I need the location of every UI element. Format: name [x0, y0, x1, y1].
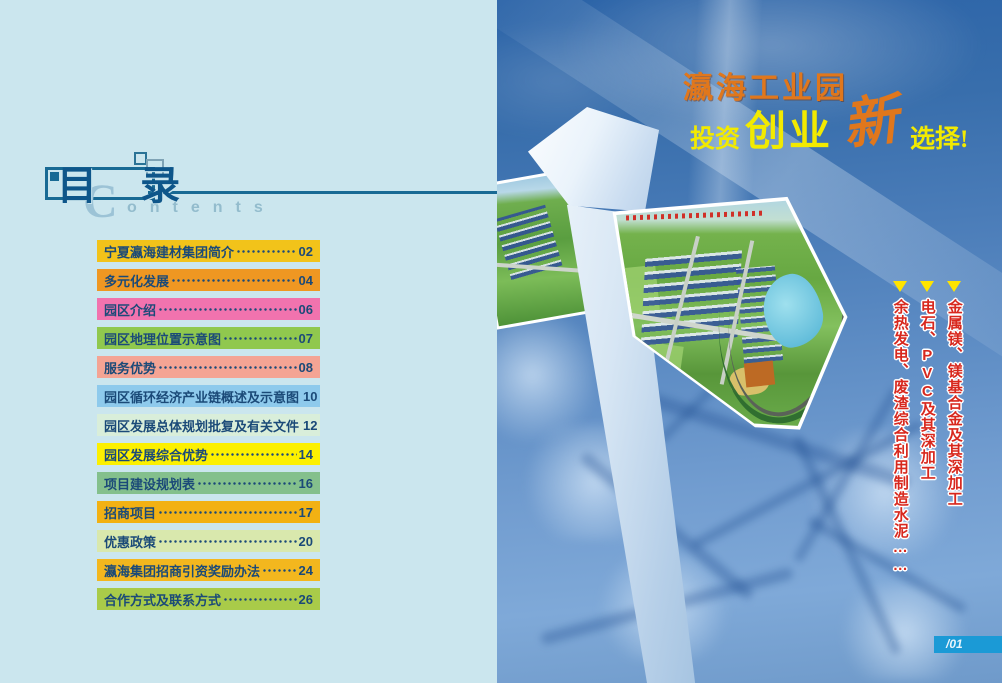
headline-slogan: 投资 创业 新 选择!: [690, 98, 968, 152]
toc-item: 园区地理位置示意图 07: [97, 327, 320, 349]
toc-item-page-number: 20: [299, 534, 313, 549]
toc-leader-dots: [171, 269, 297, 291]
arrow-down-icon: [893, 281, 907, 292]
toc-item: 园区发展总体规划批复及有关文件 12: [97, 414, 320, 436]
toc-leader-dots: [158, 298, 297, 320]
toc-item: 多元化发展 04: [97, 269, 320, 291]
toc-item-label: 多元化发展: [104, 271, 169, 290]
brochure-spread: { "toc": { "title": "目 录", "contents_ini…: [0, 0, 1002, 683]
toc-item: 优惠政策 20: [97, 530, 320, 552]
toc-item-page-number: 17: [299, 505, 313, 520]
header-rule: [148, 191, 497, 194]
toc-item: 招商项目 17: [97, 501, 320, 523]
toc-item-page-number: 08: [299, 360, 313, 375]
toc-item: 宁夏瀛海建材集团简介 02: [97, 240, 320, 262]
slogan-column: 金属镁、镁基合金及其深加工: [943, 281, 965, 507]
headline-word-choice: 选择!: [910, 127, 968, 152]
toc-leader-dots: [223, 327, 297, 349]
toc-leader-dots: [223, 588, 297, 610]
toc-leader-dots: [210, 443, 297, 465]
page-number: /01: [946, 637, 963, 651]
toc-item: 园区发展综合优势 14: [97, 443, 320, 465]
toc-item: 园区介绍 06: [97, 298, 320, 320]
page-title: 目 录: [57, 166, 196, 206]
toc-page: C 目 录 ontents 宁夏瀛海建材集团简介 02 多元化发展 04 园区介…: [0, 0, 497, 683]
toc-item-label: 项目建设规划表: [104, 474, 195, 493]
toc-item: 园区循环经济产业链概述及示意图 10: [97, 385, 320, 407]
toc-item-page-number: 12: [303, 418, 317, 433]
page-number-badge: /01: [934, 636, 1002, 653]
arrow-down-icon: [920, 281, 934, 292]
slogan-column: 电石、PVC及其深加工: [916, 281, 938, 481]
toc-leader-dots: [197, 472, 297, 494]
toc-item-page-number: 24: [299, 563, 313, 578]
toc-list: 宁夏瀛海建材集团简介 02 多元化发展 04 园区介绍 06 园区地理位置示意图…: [97, 240, 320, 617]
slogan-text: 金属镁、镁基合金及其深加工: [944, 299, 964, 507]
toc-item: 项目建设规划表 16: [97, 472, 320, 494]
toc-item: 瀛海集团招商引资奖励办法 24: [97, 559, 320, 581]
toc-item-page-number: 16: [299, 476, 313, 491]
toc-item-page-number: 06: [299, 302, 313, 317]
headline-word-startup: 创业: [745, 111, 833, 152]
headline-word-invest: 投资: [690, 127, 740, 152]
toc-item-page-number: 07: [299, 331, 313, 346]
toc-item-label: 瀛海集团招商引资奖励办法: [104, 561, 260, 580]
toc-item-page-number: 10: [303, 389, 317, 404]
toc-item-label: 招商项目: [104, 503, 156, 522]
cover-page: 瀛海工业园 投资 创业 新 选择! 金属镁、镁基合金及其深加工 电石、PVC及其…: [497, 0, 1002, 683]
toc-item-label: 园区介绍: [104, 300, 156, 319]
toc-leader-dots: [262, 559, 297, 581]
slogan-text: 余热发电、废渣综合利用制造水泥……: [890, 299, 910, 575]
toc-leader-dots: [158, 530, 297, 552]
toc-item: 合作方式及联系方式 26: [97, 588, 320, 610]
toc-item-label: 优惠政策: [104, 532, 156, 551]
toc-item-label: 园区发展总体规划批复及有关文件: [104, 416, 299, 435]
slogan-column: 余热发电、废渣综合利用制造水泥……: [889, 281, 911, 575]
toc-item-page-number: 26: [299, 592, 313, 607]
slogan-text: 电石、PVC及其深加工: [917, 299, 937, 481]
toc-item-label: 园区发展综合优势: [104, 445, 208, 464]
toc-leader-dots: [236, 240, 297, 262]
toc-item-page-number: 02: [299, 244, 313, 259]
toc-item: 服务优势 08: [97, 356, 320, 378]
toc-item-label: 宁夏瀛海建材集团简介: [104, 242, 234, 261]
toc-leader-dots: [158, 356, 297, 378]
light-patch: [827, 585, 982, 680]
toc-item-label: 园区循环经济产业链概述及示意图: [104, 387, 299, 406]
headline-word-new: 新: [840, 94, 901, 151]
panel-title-marks: [626, 210, 766, 220]
toc-item-label: 园区地理位置示意图: [104, 329, 221, 348]
toc-item-page-number: 14: [299, 447, 313, 462]
toc-leader-dots: [158, 501, 297, 523]
toc-item-page-number: 04: [299, 273, 313, 288]
toc-item-label: 合作方式及联系方式: [104, 590, 221, 609]
toc-item-label: 服务优势: [104, 358, 156, 377]
arrow-down-icon: [947, 281, 961, 292]
